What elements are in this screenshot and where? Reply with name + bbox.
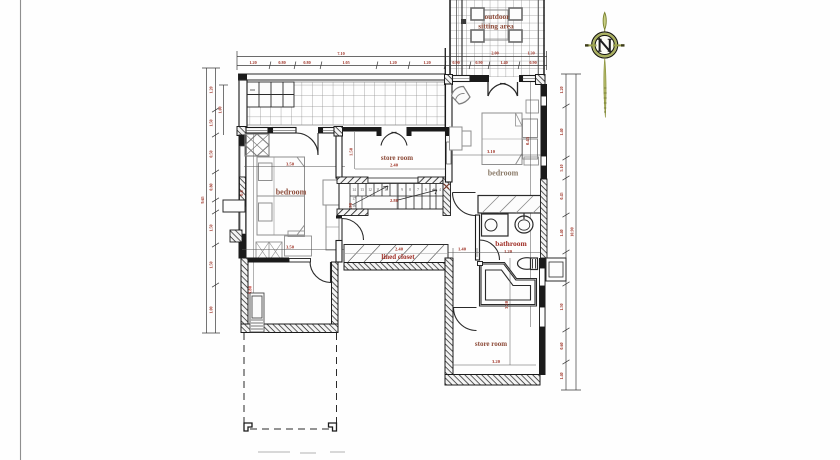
svg-text:7: 7 bbox=[417, 188, 419, 192]
svg-text:store room: store room bbox=[381, 154, 413, 162]
svg-text:1.00: 1.00 bbox=[218, 106, 223, 113]
svg-text:2.80: 2.80 bbox=[390, 198, 399, 203]
svg-text:0.80: 0.80 bbox=[209, 183, 214, 190]
svg-text:14: 14 bbox=[352, 188, 356, 192]
svg-text:13: 13 bbox=[360, 188, 364, 192]
svg-text:17: 17 bbox=[352, 197, 356, 201]
svg-text:1.20: 1.20 bbox=[423, 60, 430, 65]
svg-text:1.50: 1.50 bbox=[559, 303, 564, 310]
svg-text:1.40: 1.40 bbox=[559, 229, 564, 236]
svg-text:12: 12 bbox=[368, 188, 372, 192]
svg-text:5.10: 5.10 bbox=[559, 164, 564, 171]
svg-text:lined closet: lined closet bbox=[381, 253, 415, 261]
svg-text:sitting area: sitting area bbox=[478, 22, 514, 31]
svg-text:1.50: 1.50 bbox=[349, 147, 354, 156]
svg-text:1.40: 1.40 bbox=[458, 247, 467, 252]
svg-text:1.50: 1.50 bbox=[209, 119, 214, 126]
svg-text:1.05: 1.05 bbox=[342, 60, 349, 65]
svg-text:1.40: 1.40 bbox=[500, 60, 507, 65]
svg-text:7.10: 7.10 bbox=[337, 51, 344, 56]
svg-text:3.10: 3.10 bbox=[487, 149, 496, 154]
svg-text:11: 11 bbox=[376, 188, 380, 192]
svg-text:1.50: 1.50 bbox=[209, 224, 214, 231]
svg-text:6: 6 bbox=[425, 188, 427, 192]
svg-text:3.50: 3.50 bbox=[286, 162, 295, 167]
svg-text:9: 9 bbox=[401, 188, 403, 192]
svg-text:8: 8 bbox=[409, 188, 411, 192]
svg-text:1.40: 1.40 bbox=[559, 372, 564, 379]
svg-text:0.50: 0.50 bbox=[209, 150, 214, 157]
svg-text:1.00: 1.00 bbox=[209, 306, 214, 313]
svg-text:bedroom: bedroom bbox=[276, 188, 307, 197]
svg-text:0.80: 0.80 bbox=[303, 60, 310, 65]
svg-text:1.20: 1.20 bbox=[559, 86, 564, 93]
svg-text:0.60: 0.60 bbox=[559, 342, 564, 349]
svg-text:1.20: 1.20 bbox=[504, 249, 513, 254]
svg-text:0.45: 0.45 bbox=[525, 136, 530, 145]
svg-text:2.40: 2.40 bbox=[395, 247, 404, 252]
svg-text:1.20: 1.20 bbox=[389, 60, 396, 65]
svg-text:5: 5 bbox=[433, 188, 435, 192]
svg-text:0.80: 0.80 bbox=[278, 60, 285, 65]
svg-text:0.90: 0.90 bbox=[529, 60, 536, 65]
svg-text:2.00: 2.00 bbox=[491, 51, 498, 56]
svg-text:1.40: 1.40 bbox=[559, 128, 564, 135]
svg-text:0.45: 0.45 bbox=[559, 192, 564, 199]
svg-text:3.20: 3.20 bbox=[504, 300, 509, 309]
svg-text:0.90: 0.90 bbox=[452, 60, 459, 65]
svg-text:0.8: 0.8 bbox=[239, 189, 244, 195]
svg-text:store room: store room bbox=[475, 340, 507, 348]
svg-text:4: 4 bbox=[439, 188, 441, 192]
svg-text:1.20: 1.20 bbox=[249, 60, 256, 65]
svg-text:1.30: 1.30 bbox=[527, 51, 534, 56]
svg-text:3.20: 3.20 bbox=[492, 359, 501, 364]
svg-text:1.50: 1.50 bbox=[209, 261, 214, 268]
svg-text:10: 10 bbox=[384, 188, 388, 192]
svg-text:10.90: 10.90 bbox=[570, 227, 575, 236]
svg-text:outdoor: outdoor bbox=[484, 12, 510, 21]
svg-text:1.20: 1.20 bbox=[209, 86, 214, 93]
svg-text:2.40: 2.40 bbox=[390, 163, 399, 168]
svg-text:bathroom: bathroom bbox=[495, 239, 527, 248]
svg-text:bedroom: bedroom bbox=[488, 169, 519, 178]
svg-text:9.65: 9.65 bbox=[200, 196, 205, 203]
svg-text:0.90: 0.90 bbox=[475, 60, 482, 65]
svg-text:3.50: 3.50 bbox=[286, 245, 295, 250]
